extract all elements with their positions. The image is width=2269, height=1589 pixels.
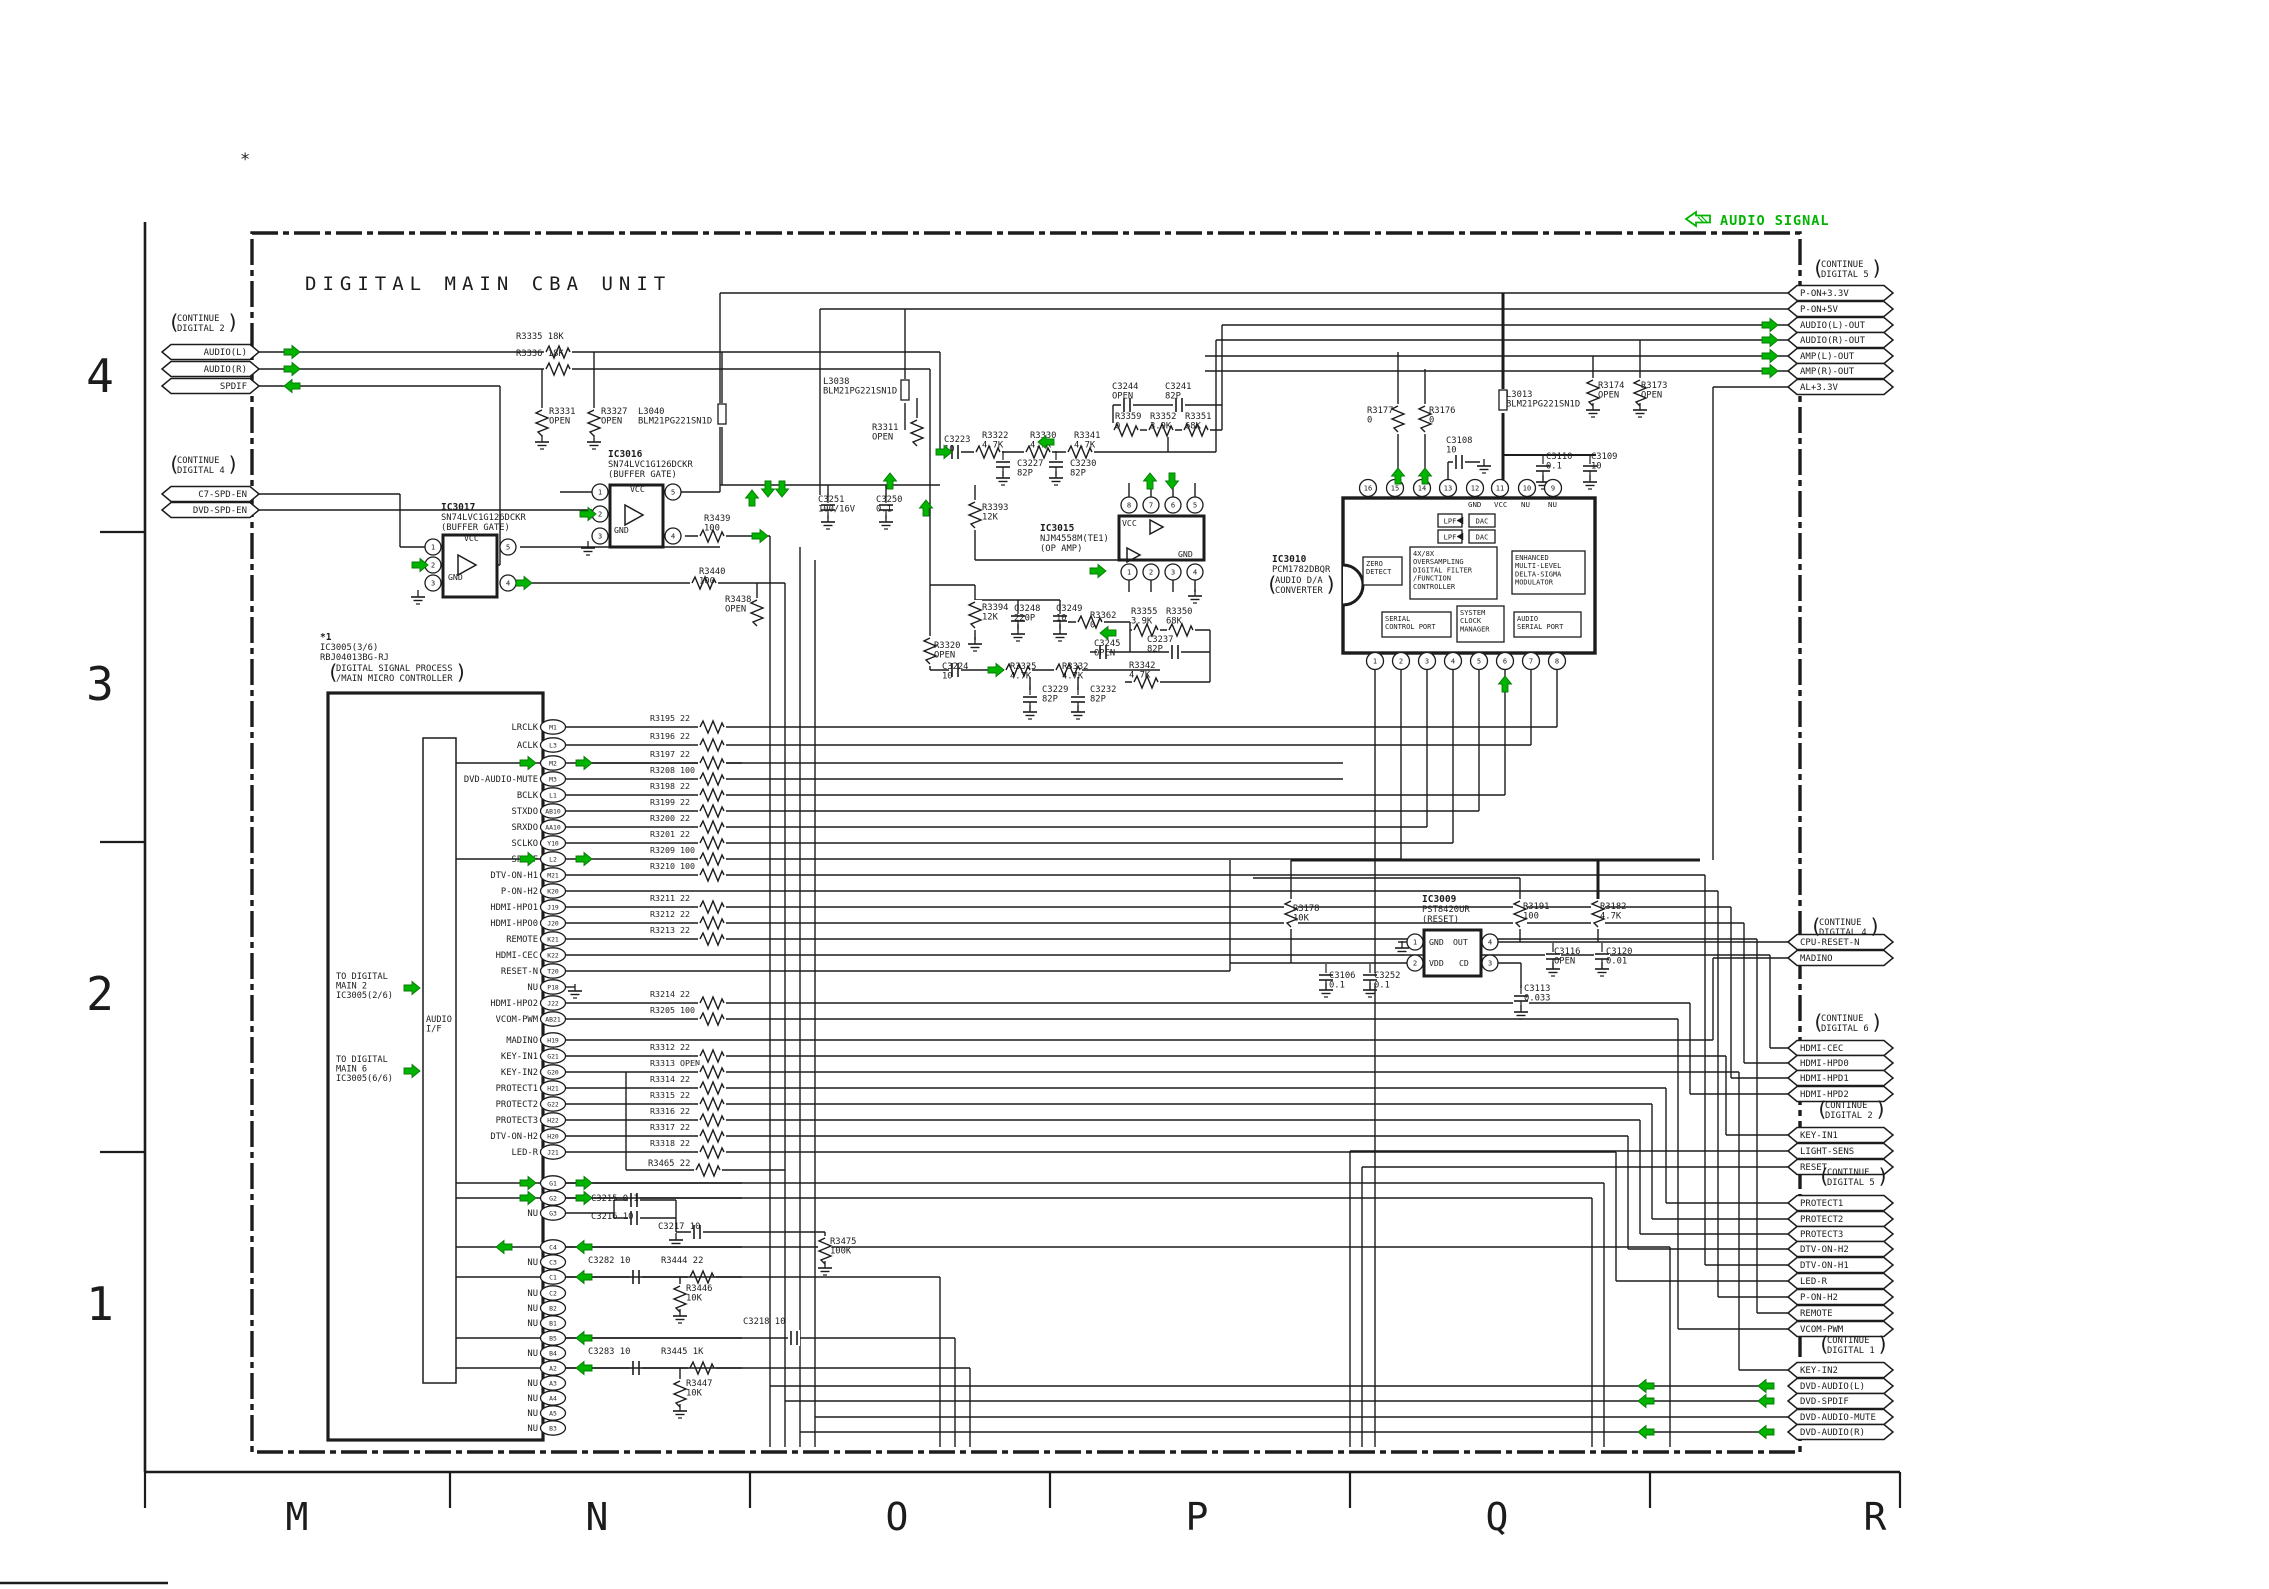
- paren: ): [1871, 1010, 1883, 1034]
- continue-note-line: CONTINUE: [1825, 1101, 1867, 1111]
- part-label: 68K: [1185, 422, 1202, 432]
- ic3005-pin-name: K21: [547, 935, 559, 943]
- ic3005-signal-label: NU: [527, 1349, 538, 1359]
- ic3005-signal-label: KEY-IN1: [501, 1052, 538, 1062]
- ic3005-pin-name: M1: [549, 723, 557, 731]
- connector-flag-left-label: C7-SPD-EN: [198, 490, 247, 500]
- ic-ref-label: IC3017: [441, 502, 475, 513]
- ic3005-pin-name: L1: [549, 791, 557, 799]
- ic3005-pin-name: T20: [547, 967, 559, 975]
- part-label: 82P: [1070, 469, 1086, 479]
- part-label: R3311: [872, 423, 898, 433]
- ic-pin-number: 11: [1496, 485, 1504, 493]
- ic-pin-number: 3: [598, 532, 602, 541]
- part-label: R3350: [1166, 607, 1192, 617]
- note-label: IC3005(2/6): [336, 991, 393, 1001]
- part-label: OPEN: [601, 417, 622, 427]
- ic-pin-number: 9: [1551, 485, 1555, 493]
- ic3010-block-label: SERIAL: [1385, 615, 1410, 623]
- ic-pin-number: 2: [1149, 568, 1153, 577]
- resistor-label: R3205 100: [650, 1005, 695, 1015]
- part-label: C3232: [1090, 685, 1116, 695]
- ic-pin-number: 14: [1418, 485, 1426, 493]
- connector-flag-right-label: MADINO: [1800, 954, 1833, 964]
- part-label: R3444 22: [661, 1256, 703, 1266]
- ic3005-signal-label: NU: [527, 1379, 538, 1389]
- part-label: C3113: [1524, 984, 1550, 994]
- part-label: R3182: [1600, 902, 1626, 912]
- ic-ref-label: SN74LVC1G126DCKR: [608, 460, 693, 470]
- part-label: C3109: [1591, 452, 1617, 462]
- audio-signal-arrow-icon: [1686, 212, 1710, 226]
- continue-note-line: DIGITAL 2: [177, 324, 225, 334]
- ic-inner-label: OUT: [1453, 937, 1468, 947]
- grid-row-label: 2: [86, 967, 114, 1021]
- part-label: R3336 18K: [516, 349, 564, 359]
- connector-flag-right-label: AUDIO(R)-OUT: [1800, 336, 1866, 346]
- note-label: MAIN 6: [336, 1065, 367, 1075]
- ic3005-pin-name: J19: [547, 903, 559, 911]
- ic3005-pin-name: C1: [549, 1273, 557, 1281]
- ic3005-pin-name: A4: [549, 1394, 557, 1402]
- connector-flag-right-label: AMP(R)-OUT: [1800, 367, 1855, 377]
- ic-pin-number: 2: [1413, 959, 1417, 968]
- signal-arrow-l: [576, 1271, 592, 1284]
- part-label: R3327: [601, 407, 627, 417]
- ic-pin-number: 1: [598, 488, 602, 497]
- signal-arrow-l: [1638, 1395, 1654, 1408]
- part-label: 82P: [1042, 695, 1058, 705]
- part-label: C3250: [876, 495, 902, 505]
- paren: ): [1875, 1097, 1887, 1121]
- signal-arrow-l: [1638, 1380, 1654, 1393]
- ic3005-signal-label: HDMI-HPO1: [490, 903, 538, 913]
- part-label: C3252: [1374, 971, 1400, 981]
- ic3005-signal-label: LRCLK: [512, 723, 539, 733]
- grid-col-label: M: [286, 1495, 309, 1539]
- ic-pin-number: 8: [1555, 658, 1559, 666]
- ic-pin-number: 7: [1529, 658, 1533, 666]
- part-label: OPEN: [1554, 957, 1575, 967]
- ic3005-signal-label: PROTECT1: [496, 1084, 538, 1094]
- ic3005-pin-name: L2: [549, 855, 557, 863]
- part-label: C3229: [1042, 685, 1068, 695]
- ic3005-pin-name: A3: [549, 1379, 557, 1387]
- part-label: R3320: [934, 641, 960, 651]
- ic3005-pin-name: C2: [549, 1289, 557, 1297]
- continue-note-line: DIGITAL 6: [1821, 1024, 1869, 1034]
- ic3005-pin-name: M3: [549, 775, 557, 783]
- part-label: BLM21PG221SN1D: [823, 387, 897, 397]
- ic-pin-number: 5: [671, 488, 675, 497]
- part-label: 0: [1367, 416, 1372, 426]
- ic3005-pin-name: B3: [549, 1424, 557, 1432]
- part-label: 10K: [686, 1389, 703, 1399]
- ic-pin-number: 8: [1127, 501, 1131, 510]
- part-label: L3013: [1506, 390, 1532, 400]
- connector-flag-right-label: KEY-IN1: [1800, 1131, 1838, 1141]
- signal-arrow-r: [1762, 365, 1778, 378]
- part-label: 220P: [1014, 614, 1035, 624]
- part-label: 4.7K: [1129, 671, 1151, 681]
- resistor-label: R3198 22: [650, 781, 690, 791]
- part-label: R3355: [1131, 607, 1157, 617]
- ic-pin-number: 6: [1171, 501, 1175, 510]
- part-label: OPEN: [1641, 391, 1662, 401]
- part-label: 4.7K: [1600, 912, 1622, 922]
- continue-note-line: CONVERTER: [1275, 586, 1323, 596]
- ic3005-pin-name: J21: [547, 1148, 559, 1156]
- ic3010-block-label: CONTROLLER: [1413, 583, 1456, 591]
- ic3005-signal-label: KEY-IN2: [501, 1068, 538, 1078]
- connector-flag-right-label: PROTECT1: [1800, 1199, 1843, 1209]
- part-label: R3331: [549, 407, 575, 417]
- part-label: R3325: [1010, 662, 1036, 672]
- ic-inner-label: GND: [1178, 549, 1193, 559]
- part-label: C3227: [1017, 459, 1043, 469]
- signal-arrow-l: [1758, 1380, 1774, 1393]
- part-label: C3282 10: [588, 1256, 630, 1266]
- connector-flag-right-label: DVD-AUDIO(L): [1800, 1382, 1865, 1392]
- grid-col-label: P: [1186, 1495, 1209, 1539]
- part-label: 100/16V: [818, 505, 856, 515]
- ic3010-block-label: CONTROL PORT: [1385, 623, 1436, 631]
- ic3005-signal-label: STXDO: [512, 807, 538, 817]
- grid-row-label: 1: [86, 1277, 114, 1331]
- ic-pin-number: 2: [598, 510, 602, 519]
- ic3005-pin-name: AB21: [545, 1015, 561, 1023]
- ic3010-block-label: LPF: [1444, 534, 1457, 542]
- ic3005-pin-name: P18: [547, 983, 559, 991]
- part-label: L3040: [638, 407, 664, 417]
- ic-pin-number: 4: [671, 532, 675, 541]
- ic3005-signal-label: MADINO: [506, 1036, 538, 1046]
- resistor-label: R3210 100: [650, 861, 695, 871]
- part-label: 12K: [982, 513, 999, 523]
- ic-pin-number: 3: [1425, 658, 1429, 666]
- grid-col-label: N: [586, 1495, 609, 1539]
- note-label: TO DIGITAL: [336, 1055, 388, 1065]
- connector-flag-right-label: AL+3.3V: [1800, 383, 1839, 393]
- ic-ref-label: NJM4558M(TE1): [1040, 534, 1109, 544]
- signal-arrow-l: [1758, 1395, 1774, 1408]
- part-label: 82P: [1165, 392, 1181, 402]
- part-label: C3237: [1147, 635, 1173, 645]
- signal-arrow-r: [1762, 350, 1778, 363]
- connector-flag-right-label: DVD-AUDIO(R): [1800, 1428, 1865, 1438]
- signal-arrow-r: [752, 530, 768, 543]
- ic3005-signal-label: LED-R: [512, 1148, 539, 1158]
- part-label: R3445 1K: [661, 1347, 704, 1357]
- part-label: R3351: [1185, 412, 1211, 422]
- part-label: R3438: [725, 595, 751, 605]
- part-label: 12K: [982, 613, 999, 623]
- ic3005-pin-name: C3: [549, 1258, 557, 1266]
- ic3005-pin-name: B4: [549, 1349, 557, 1357]
- continue-note-line: DIGITAL 1: [1827, 1346, 1875, 1356]
- part-label: R3352: [1150, 412, 1176, 422]
- connector-flag-right-label: LED-R: [1800, 1277, 1828, 1287]
- ic-ref-label: PST8420UR: [1422, 905, 1470, 915]
- ic3005-signal-label: REMOTE: [506, 935, 538, 945]
- signal-arrow-r: [404, 1065, 420, 1078]
- connector-flag-right-label: DVD-SPDIF: [1800, 1397, 1849, 1407]
- connector-flag-right-label: PROTECT3: [1800, 1230, 1843, 1240]
- part-label: R3362: [1090, 611, 1116, 621]
- resistor-label: R3316 22: [650, 1106, 690, 1116]
- ic3005-signal-label: SRXDO: [512, 823, 538, 833]
- connector-flag-right-label: DVD-AUDIO-MUTE: [1800, 1413, 1876, 1423]
- resistor-label: R3212 22: [650, 909, 690, 919]
- ic3005-pin-name: G22: [547, 1100, 559, 1108]
- signal-arrow-r: [520, 1192, 536, 1205]
- connector-flag-right-label: PROTECT2: [1800, 1215, 1843, 1225]
- part-label: C3216 10: [591, 1212, 633, 1222]
- part-label: C3230: [1070, 459, 1096, 469]
- part-label: R3191: [1523, 902, 1549, 912]
- connector-flag-left-label: AUDIO(R): [204, 365, 247, 375]
- ic-inner-label: GND: [448, 572, 463, 582]
- resistor-label: R3201 22: [650, 829, 690, 839]
- part-label: C3116: [1554, 947, 1580, 957]
- connector-flag-right-label: P-ON+3.3V: [1800, 289, 1849, 299]
- part-label: 10: [942, 672, 953, 682]
- part-label: 100: [704, 524, 720, 534]
- continue-note-line: CONTINUE: [1819, 918, 1861, 928]
- part-label: R3475: [830, 1237, 856, 1247]
- part-label: R3439: [704, 514, 730, 524]
- part-label: C3108: [1446, 436, 1472, 446]
- part-label: R3394: [982, 603, 1008, 613]
- part-label: OPEN: [1598, 391, 1619, 401]
- ic3005-pin-name: H22: [547, 1116, 559, 1124]
- ic3005-signal-label: PROTECT2: [496, 1100, 538, 1110]
- continue-note-line: CONTINUE: [1821, 1014, 1863, 1024]
- part-label: 100K: [830, 1247, 852, 1257]
- part-label: BLM21PG221SN1D: [638, 417, 712, 427]
- ic3005-signal-label: RESET-N: [501, 967, 538, 977]
- signal-arrow-r: [520, 1177, 536, 1190]
- signal-arrow-l: [576, 1362, 592, 1375]
- part-label: OPEN: [1112, 392, 1133, 402]
- ic3010-block-label: DELTA-SIGMA: [1515, 570, 1562, 578]
- ic3005-pin-name: H20: [547, 1132, 559, 1140]
- resistor-label: R3200 22: [650, 813, 690, 823]
- part-label: OPEN: [934, 651, 955, 661]
- part-label: C3224: [942, 662, 968, 672]
- ic3005-signal-label: HDMI-HPO2: [490, 999, 538, 1009]
- mask: [1453, 454, 1465, 470]
- ic3005-signal-label: SCLKO: [512, 839, 538, 849]
- part-label: R3465 22: [648, 1159, 690, 1169]
- mask: [1169, 644, 1181, 660]
- part-label: C3215 0.1: [591, 1194, 639, 1204]
- ic3005-pin-name: B1: [549, 1319, 557, 1327]
- part-label: C3223: [944, 435, 970, 445]
- ic3010-block-label: DETECT: [1366, 568, 1392, 576]
- part-label: R3174: [1598, 381, 1624, 391]
- resistor-label: R3317 22: [650, 1122, 690, 1132]
- resistor-label: R3213 22: [650, 925, 690, 935]
- ic3010-block-label: MODULATOR: [1515, 579, 1554, 587]
- continue-note-line: CONTINUE: [1821, 260, 1863, 270]
- connector-flag-right-label: HDMI-HPD1: [1800, 1074, 1849, 1084]
- paren: ): [1877, 1164, 1889, 1188]
- part-label: R3341: [1074, 431, 1100, 441]
- ic-pin-number: 4: [506, 579, 510, 588]
- ic3005-signal-label: NU: [527, 1209, 538, 1219]
- resistor-label: R3211 22: [650, 893, 690, 903]
- ic-pin-number: 4: [1488, 938, 1492, 947]
- continue-note-line: CONTINUE: [177, 314, 219, 324]
- signal-arrow-r: [1762, 334, 1778, 347]
- paren: ): [227, 310, 239, 334]
- continue-note-line: CONTINUE: [1827, 1168, 1869, 1178]
- part-label: 10K: [1293, 914, 1310, 924]
- ic-ref-label: SN74LVC1G126DCKR: [441, 513, 526, 523]
- resistor-label: R3312 22: [650, 1042, 690, 1052]
- ic-inner-label: CD: [1459, 958, 1469, 968]
- ic3005-pin-name: K22: [547, 951, 559, 959]
- connector-flag-right-label: P-ON+5V: [1800, 305, 1839, 315]
- ic3010-block-label: 4X/8X: [1413, 550, 1435, 558]
- ic3005-signal-label: HDMI-CEC: [496, 951, 538, 961]
- ic3005-signal-label: NU: [527, 1289, 538, 1299]
- ic3010-block-label: /FUNCTION: [1413, 575, 1451, 583]
- part-label: C3120: [1606, 947, 1632, 957]
- continue-note-line: DIGITAL 5: [1827, 1178, 1875, 1188]
- mask: [788, 1330, 800, 1346]
- ic-ref-label: IC3009: [1422, 894, 1457, 905]
- ic3010-pin-sub-label: GND: [1468, 500, 1481, 509]
- ic-ref-label: (BUFFER GATE): [441, 523, 510, 533]
- note-label: AUDIO: [426, 1015, 452, 1025]
- part-label: 0: [1090, 621, 1095, 631]
- ic3005-pin-name: L3: [549, 741, 557, 749]
- resistor-label: R3208 100: [650, 765, 695, 775]
- ic3005-pin-name: G2: [549, 1194, 557, 1202]
- ic3005-signal-label: BCLK: [517, 791, 539, 801]
- connector-flag-right-label: AUDIO(L)-OUT: [1800, 321, 1866, 331]
- part-label: 4.7K: [1062, 672, 1084, 682]
- part-label: 0: [1115, 422, 1120, 432]
- part-label: R3447: [686, 1379, 712, 1389]
- ic3005-signal-label: NU: [527, 983, 538, 993]
- signal-arrow-r: [1762, 319, 1778, 332]
- ic-ref-label: IC3015: [1040, 523, 1075, 534]
- part-label: 0.01: [1606, 957, 1627, 967]
- note-label: MAIN 2: [336, 982, 367, 992]
- audio-signal-legend: AUDIO SIGNAL: [1720, 213, 1830, 229]
- ic-inner-label: GND: [614, 525, 629, 535]
- part-label: OPEN: [1094, 649, 1115, 659]
- part-label: C3251: [818, 495, 844, 505]
- paren: ): [1871, 256, 1883, 280]
- ic-pin-number: 3: [1488, 959, 1492, 968]
- signal-arrow-d: [762, 481, 775, 497]
- paren: ): [1869, 914, 1881, 938]
- ic3010-block-label: ZERO: [1366, 560, 1383, 568]
- part-label: L3038: [823, 377, 849, 387]
- connector-flag-right-label: DTV-ON-H1: [1800, 1261, 1849, 1271]
- connector-flag-right-label: REMOTE: [1800, 1309, 1833, 1319]
- ic3010-pin-sub-label: VCC: [1494, 500, 1507, 509]
- continue-note-line: DIGITAL 5: [1821, 270, 1869, 280]
- ic3010-block-label: ENHANCED: [1515, 554, 1549, 562]
- ic-inner-label: GND: [1429, 937, 1444, 947]
- part-label: 4.7K: [1010, 672, 1032, 682]
- resistor-label: R3199 22: [650, 797, 690, 807]
- ic-pin-number: 12: [1471, 485, 1479, 493]
- grid-row-label: 3: [86, 657, 114, 711]
- ic3010-block-label: SERIAL PORT: [1517, 623, 1564, 631]
- part-label: 3.9K: [1131, 617, 1153, 627]
- ic3005-pin-name: J20: [547, 919, 559, 927]
- continue-note-line: CONTINUE: [1827, 1336, 1869, 1346]
- part-label: C3241: [1165, 382, 1191, 392]
- part-label: OPEN: [872, 433, 893, 443]
- grid-col-label: O: [886, 1495, 909, 1539]
- ic-box-1: [610, 485, 663, 547]
- part-label: 10: [1056, 614, 1067, 624]
- part-label: 0: [1429, 416, 1434, 426]
- ic3005-pin-name: AB10: [545, 807, 561, 815]
- ic-ref-label: IC3005(3/6): [320, 643, 378, 653]
- part-label: C3218 10: [743, 1317, 785, 1327]
- ic3005-pin-name: H21: [547, 1084, 559, 1092]
- resistor-label: R3315 22: [650, 1090, 690, 1100]
- part-label: C3248: [1014, 604, 1040, 614]
- resistor-label: R3313 OPEN: [650, 1058, 700, 1068]
- part-label: 10: [1446, 446, 1457, 456]
- part-label: R3446: [686, 1284, 712, 1294]
- ic3005-signal-label: NU: [527, 1304, 538, 1314]
- ic3005-pin-name: AA10: [545, 823, 561, 831]
- part-label: 3.9K: [1150, 422, 1172, 432]
- signal-arrow-r: [520, 757, 536, 770]
- connector-flag-right-label: KEY-IN2: [1800, 1366, 1838, 1376]
- ic3005-signal-label: NU: [527, 1319, 538, 1329]
- note-label: I/F: [426, 1025, 442, 1035]
- signal-arrow-d: [1166, 473, 1179, 489]
- connector-flag-right-label: LIGHT-SENS: [1800, 1147, 1854, 1157]
- part-label: 0.033: [1524, 994, 1550, 1004]
- part-label: R3178: [1293, 904, 1319, 914]
- resistor-label: R3214 22: [650, 989, 690, 999]
- ic3010-pin-sub-label: NU: [1548, 500, 1557, 509]
- ic3005-signal-label: NU: [527, 1424, 538, 1434]
- ic-pin-number: 5: [1193, 501, 1197, 510]
- schematic-page: 4321MNOPQRDIGITAL MAIN CBA UNIT*AUDIO SI…: [0, 0, 2269, 1589]
- ic-pin-number: 10: [1523, 485, 1531, 493]
- connector-flag-right-label: HDMI-HPD0: [1800, 1059, 1849, 1069]
- resistor-label: R3196 22: [650, 731, 690, 741]
- ic-pin-number: 3: [1171, 568, 1175, 577]
- signal-arrow-r: [576, 1192, 592, 1205]
- resistor-label: R3197 22: [650, 749, 690, 759]
- ic3005-signal-label: NU: [527, 1409, 538, 1419]
- signal-arrow-r: [576, 853, 592, 866]
- ic3010-block-label: CLOCK: [1460, 617, 1482, 625]
- ic3010-block-label: DIGITAL FILTER: [1413, 566, 1473, 574]
- ic-ref-label: RBJ04013BG-RJ: [320, 653, 389, 663]
- part-label: 0.1: [1546, 462, 1562, 472]
- part-label: C3249: [1056, 604, 1082, 614]
- ic3005-signal-label: NU: [527, 1258, 538, 1268]
- ic-pin-number: 4: [1451, 658, 1455, 666]
- ic3005-pin-name: M21: [547, 871, 559, 879]
- part-label: R3359: [1115, 412, 1141, 422]
